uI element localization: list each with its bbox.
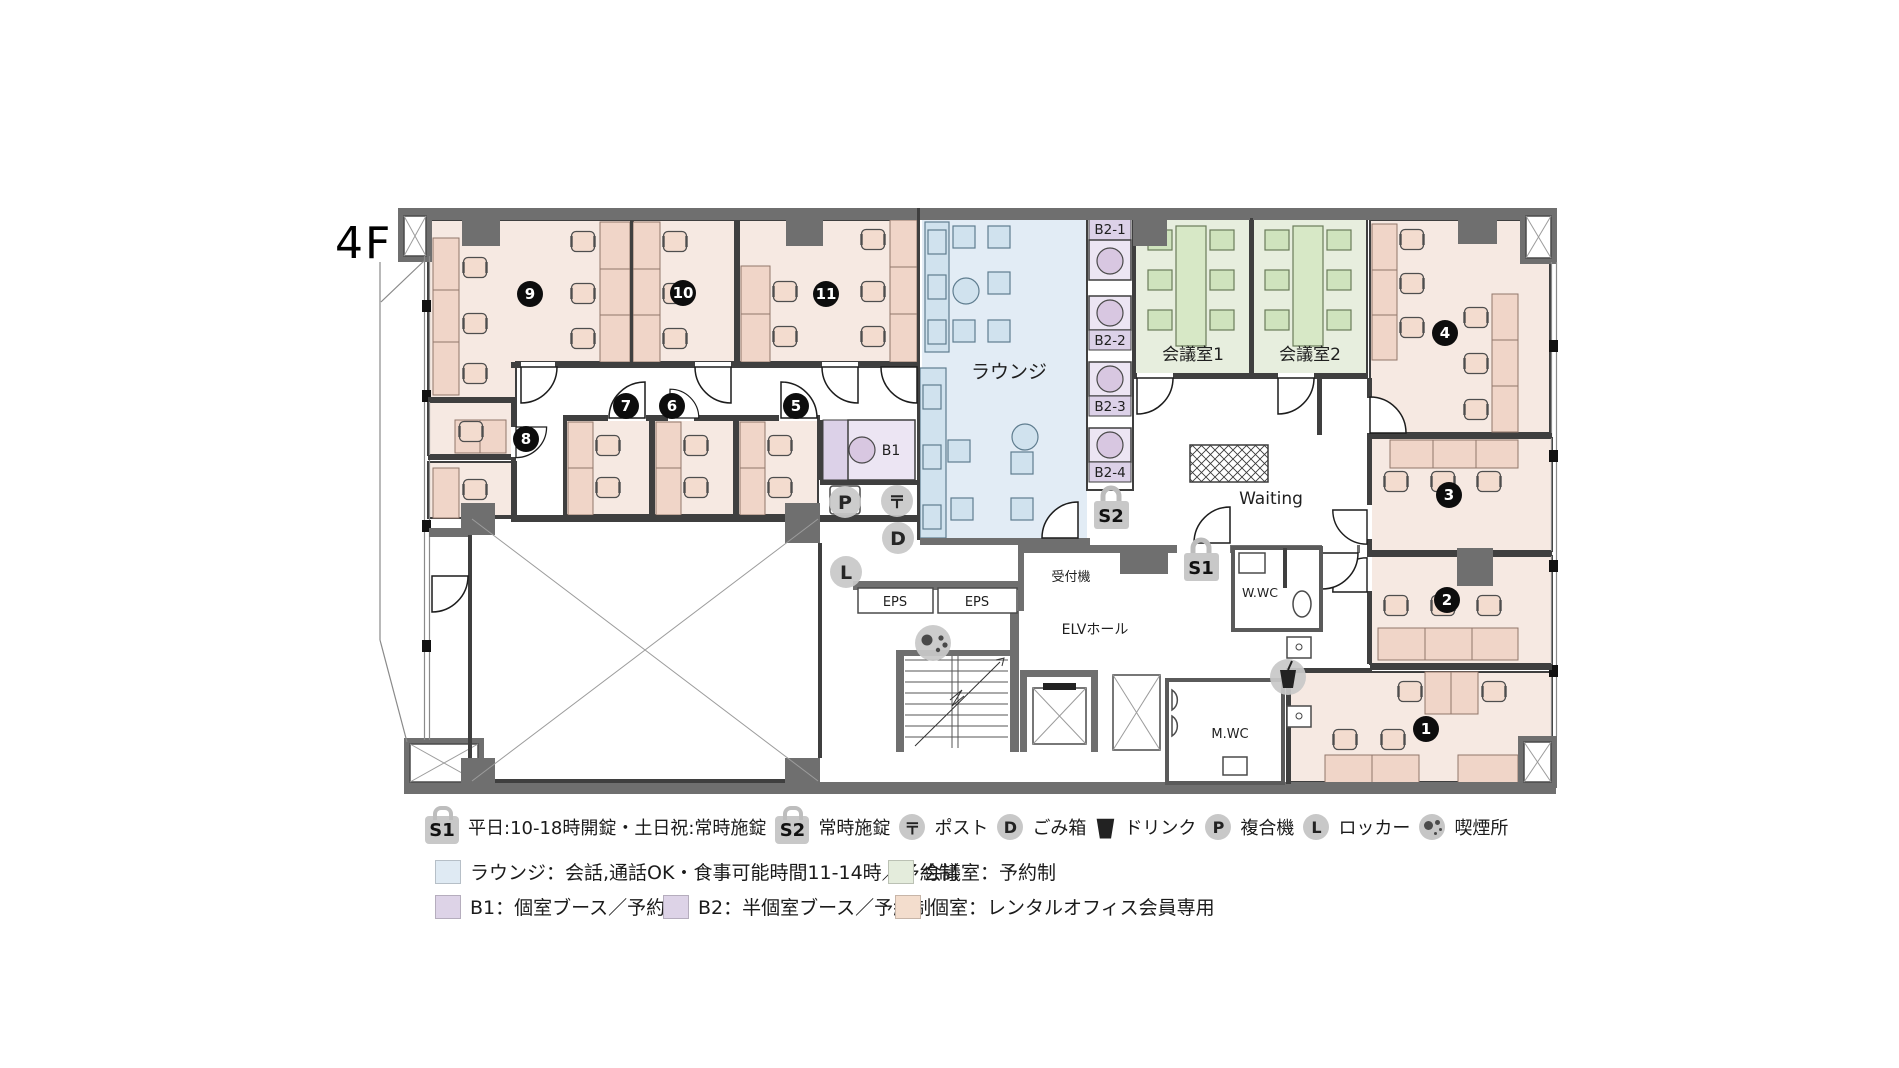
reception: 受付機 ELVホール (1051, 570, 1128, 638)
svg-text:10: 10 (673, 284, 694, 302)
lounge-area: ラウンジ (920, 212, 1087, 540)
meeting-legend-text: 会議室：予約制 (923, 858, 1056, 885)
s2-legend-text: 常時施錠 (818, 814, 890, 840)
lounge-label: ラウンジ (971, 361, 1047, 383)
svg-text:1: 1 (1421, 720, 1431, 738)
copier-icon: P (1205, 814, 1231, 840)
room-badge-8: 8 (513, 426, 539, 452)
copier-icon: P (838, 492, 852, 514)
wwc-label: W.WC (1242, 585, 1278, 600)
floor-label: 4F (335, 218, 392, 269)
room-badge-1: 1 (1413, 716, 1439, 742)
private-legend-text: 個室：レンタルオフィス会員専用 (930, 893, 1215, 920)
svg-text:9: 9 (525, 285, 535, 303)
eps-label-1: EPS (883, 595, 907, 610)
s1-lock-icon: S1 (425, 816, 459, 844)
s2-lock-icon: S2 (775, 816, 809, 844)
womens-wc: W.WC (1233, 548, 1321, 630)
smoking-legend-text: 喫煙所 (1454, 814, 1508, 840)
meeting-color-swatch (888, 860, 914, 884)
meeting1-label: 会議室1 (1162, 345, 1224, 365)
room-badge-6: 6 (659, 393, 685, 419)
booth-b1: B1 (823, 420, 915, 480)
room-badge-3: 3 (1436, 482, 1462, 508)
locker-legend-text: ロッカー (1338, 814, 1410, 840)
stairs (905, 656, 1008, 748)
meeting2-label: 会議室2 (1279, 345, 1341, 365)
b1-color-swatch (435, 895, 461, 919)
svg-text:8: 8 (521, 430, 531, 448)
room-badge-5: 5 (783, 393, 809, 419)
smoking-icon (915, 625, 951, 661)
b1-label: B1 (882, 443, 901, 459)
b2-2-label: B2-2 (1094, 333, 1125, 349)
floorplan-page: 4F (0, 0, 1899, 1068)
legend-b1: B1：個室ブース／予約制 (435, 893, 684, 920)
reception-label: 受付機 (1051, 570, 1090, 585)
legend-b2: B2：半個室ブース／予約制 (663, 893, 931, 920)
trash-icon: D (890, 528, 906, 550)
mwc-label: M.WC (1211, 727, 1248, 742)
room-badge-2: 2 (1434, 587, 1460, 613)
room-badge-4: 4 (1432, 320, 1458, 346)
svg-text:3: 3 (1444, 486, 1454, 504)
svg-text:S2: S2 (1098, 506, 1124, 527)
booth-b2-column: B2-1 B2-2 B2-3 B2-4 (1087, 212, 1133, 490)
room-badge-11: 11 (813, 281, 839, 307)
drink-icon (1095, 816, 1115, 839)
b1-legend-text: B1：個室ブース／予約制 (470, 893, 684, 920)
b2-4-label: B2-4 (1094, 465, 1125, 481)
drink-icon (1270, 659, 1306, 695)
svg-text:11: 11 (816, 285, 837, 303)
legend-row-facilities: S1 平日:10-18時開錠・土日祝:常時施錠 S2 常時施錠 〒 ポスト D … (425, 810, 1508, 844)
s1-legend-text: 平日:10-18時開錠・土日祝:常時施錠 (468, 814, 766, 840)
waiting-label: Waiting (1239, 489, 1303, 509)
elevator (1020, 670, 1098, 752)
lounge-color-swatch (435, 860, 461, 884)
legend-meeting: 会議室：予約制 (888, 858, 1056, 885)
b2-3-label: B2-3 (1094, 399, 1125, 415)
sink-icon (1287, 637, 1311, 658)
trash-legend-text: ごみ箱 (1032, 814, 1086, 840)
legend-lounge: ラウンジ：会話,通話OK・食事可能時間11-14時／予約制 (435, 858, 958, 885)
eps-label-2: EPS (965, 595, 989, 610)
lounge-legend-text: ラウンジ：会話,通話OK・食事可能時間11-14時／予約制 (470, 858, 958, 885)
mens-wc: M.WC (1167, 680, 1283, 783)
svg-text:4: 4 (1440, 324, 1450, 342)
sink-icon (1287, 706, 1311, 727)
locker-icon: L (840, 562, 852, 584)
b2-1-label: B2-1 (1094, 222, 1125, 238)
b2-color-swatch (663, 895, 689, 919)
svg-text:2: 2 (1442, 591, 1452, 609)
post-icon: 〒 (899, 814, 925, 840)
room-badge-7: 7 (613, 393, 639, 419)
post-legend-text: ポスト (934, 814, 988, 840)
smoking-icon (1419, 814, 1445, 840)
svg-text:S1: S1 (1188, 558, 1214, 579)
legend-private: 個室：レンタルオフィス会員専用 (895, 893, 1215, 920)
svg-text:5: 5 (791, 397, 801, 415)
copier-legend-text: 複合機 (1240, 814, 1294, 840)
trash-icon: D (997, 814, 1023, 840)
svg-text:6: 6 (667, 397, 677, 415)
svg-text:7: 7 (621, 397, 631, 415)
s2-badge: S2 (1094, 488, 1129, 529)
drink-legend-text: ドリンク (1124, 814, 1196, 840)
locker-icon: L (1303, 814, 1329, 840)
elv-hall-label: ELVホール (1062, 622, 1129, 638)
private-color-swatch (895, 895, 921, 919)
room-badge-10: 10 (670, 280, 696, 306)
room-badge-9: 9 (517, 281, 543, 307)
post-icon: 〒 (889, 493, 906, 513)
